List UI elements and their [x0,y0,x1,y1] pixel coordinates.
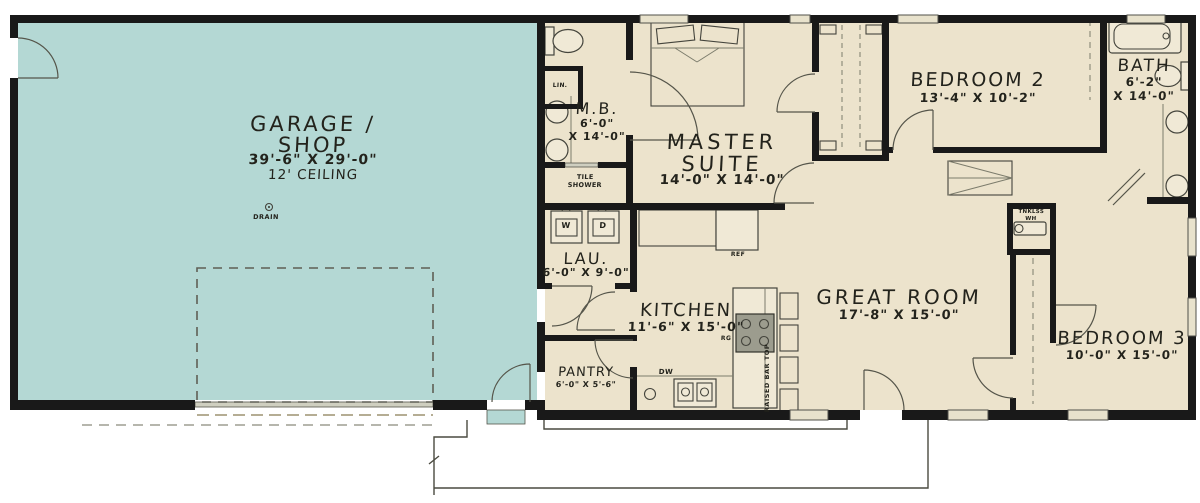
master-bath-dim2: X 14'-0" [568,131,626,144]
laundry-dims: 6'-0" X 9'-0" [542,267,630,280]
bath-label: BATH [1117,57,1171,77]
fridge-label: REF [731,252,746,259]
range-label: RG [721,336,732,343]
garage-dims: 39'-6" X 29'-0" [248,152,378,168]
garage-ceiling-note: 12' CEILING [267,168,358,184]
water-heater-label: TNKLSSWH [1018,209,1044,223]
patio-outline [429,420,928,495]
water-heater-line1: TNKLSS [1018,209,1044,215]
dishwasher-label: DW [659,368,674,376]
bath-dim1: 6'-2" [1125,76,1162,90]
water-heater [1014,222,1046,235]
master-bath-label: M.B. [575,100,619,118]
linen-label: LIN. [553,82,568,90]
tile-shower-line1: TILE [577,173,594,181]
raised-bar-label: RAISED BAR TOP [764,342,771,414]
great-room-label: GREAT ROOM [816,286,983,309]
water-heater-line2: WH [1025,216,1037,222]
bath-dim2: X 14'-0" [1113,90,1175,104]
pantry-dims: 6'-0" X 5'-6" [556,380,617,389]
bedroom3-label: BEDROOM 3 [1057,329,1187,350]
master-suite-dims: 14'-0" X 14'-0" [659,173,785,189]
bedroom2-label: BEDROOM 2 [910,70,1046,92]
pantry-label: PANTRY [558,366,615,381]
raised-bar-text: RAISED BAR TOP [764,344,771,412]
washer-label: W [561,221,571,230]
floor-plan: GARAGE / SHOP 39'-6" X 29'-0" 12' CEILIN… [0,0,1200,503]
great-room-dims: 17'-8" X 15'-0" [838,309,959,324]
dryer-label: D [599,221,607,230]
bedroom3-dims: 10'-0" X 15'-0" [1065,349,1178,363]
master-suite-label-line1: MASTER [666,130,778,154]
tile-shower-line2: SHOWER [568,181,602,189]
drain-label: DRAIN [253,214,279,221]
master-bath-dim1: 6'-0" [580,118,615,131]
bedroom2-dims: 13'-4" X 10'-2" [919,91,1036,105]
kitchen-dims: 11'-6" X 15'-0" [627,320,744,334]
tile-shower-label: TILESHOWER [568,173,603,190]
